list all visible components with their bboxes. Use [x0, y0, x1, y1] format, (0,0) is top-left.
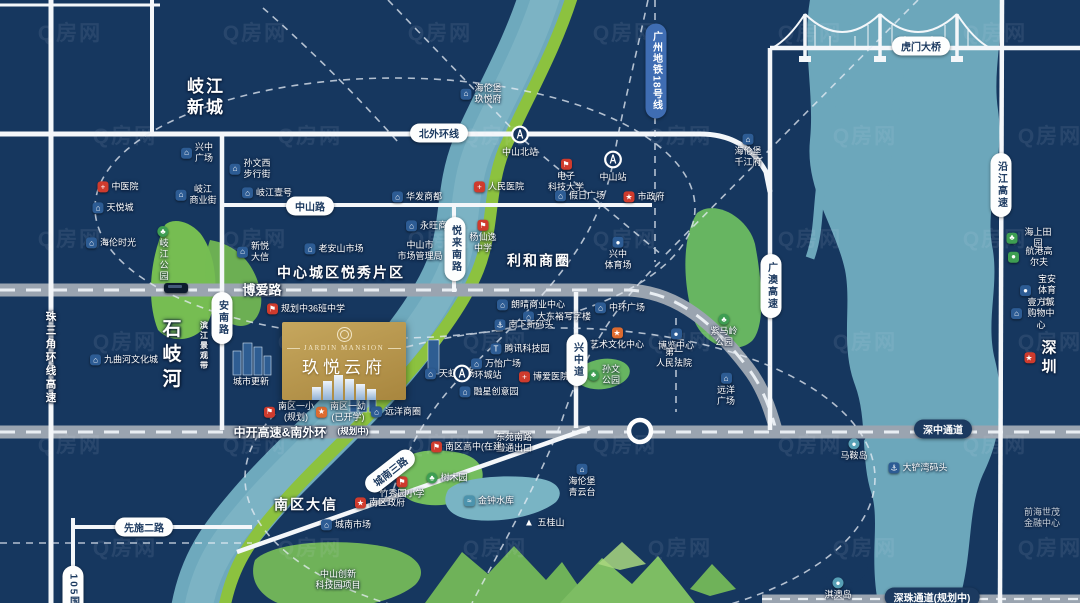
- property-logo-icon: [337, 327, 352, 342]
- poi-label: 南区一小 (规划): [278, 401, 314, 424]
- culture-icon: ★: [611, 327, 622, 338]
- poi-nanxia-new-wharf: ⚓南下新码头: [494, 319, 553, 330]
- poi-label: 远洋商圈: [385, 406, 421, 417]
- poi-yangxianyi-middle-school: ⚑杨仙逸 中学: [469, 220, 496, 255]
- poi-label: 海伦时光: [100, 237, 136, 248]
- stadium-icon: ●: [670, 328, 681, 339]
- school-icon: ⚑: [560, 159, 571, 170]
- road-label-shiqi-river: 石岐河: [157, 319, 184, 394]
- poi-hanggang-golf: ●航港高尔夫: [1008, 246, 1056, 269]
- mall-icon: ⌂: [459, 387, 470, 398]
- mall-icon: ⌂: [86, 238, 97, 249]
- metro-station-label: 中山站: [599, 170, 626, 183]
- poi-zhonghuan-plaza: ⌂中环广场: [595, 302, 645, 313]
- dev-icon: ⌂: [742, 134, 753, 145]
- road-label-yuelai-south-road: 悦来南路: [445, 217, 466, 281]
- poi-label: 城南市场: [335, 519, 371, 530]
- dev-icon: ⌂: [576, 464, 587, 475]
- poi-hailun-time: ⌂海伦时光: [86, 237, 136, 248]
- poi-nanqu-kindergarten: ★南区一幼 (已开学): [316, 401, 366, 424]
- road-label-guangao-expressway: 广澳高速: [761, 254, 782, 318]
- poi-qiao-island: ●淇澳岛: [824, 577, 851, 600]
- poi-qianhai-shimao-financial-center: 前海世茂 金融中心: [1024, 507, 1060, 530]
- poi-label: 九曲河文化城: [104, 354, 158, 365]
- stadium-icon: ●: [1020, 286, 1031, 297]
- road-label-prd-ring-expressway: 珠三角环线高速: [44, 311, 59, 406]
- poi-label: 海伦堡 玖悦府: [474, 83, 501, 106]
- poi-nanqu-high-school: ⚑南区高中(在建): [431, 441, 505, 452]
- poi-langqing-business-center: ⌂朗晴商业中心: [497, 299, 565, 310]
- poi-city-government: ★市政府: [623, 191, 664, 202]
- poi-art-culture-center: ★艺术文化中心: [590, 327, 644, 350]
- poi-label: 南下新码头: [508, 319, 553, 330]
- poi-qijiang-park: ♣岐江公园: [157, 226, 168, 282]
- poi-label: 腾讯科技园: [504, 343, 549, 354]
- poi-label: 人民医院: [488, 181, 524, 192]
- poi-yifangcheng-mall: ⌂壹方城 购物中心: [1011, 297, 1057, 331]
- road-label-guangzhou-metro-line-18: 广州地铁18号线: [646, 23, 667, 118]
- label-layer: +中医院⌂天悦城⌂兴中 广场⌂孙文西 步行街⌂岐江 商业街⌂岐江壹号⌂海伦时光♣…: [0, 0, 1080, 603]
- poi-label: 远洋 广场: [717, 385, 735, 408]
- poi-market-admin-bureau: 中山市 市场管理局: [397, 240, 442, 263]
- mall-icon: ⌂: [555, 191, 566, 202]
- poi-yuanyang-business-circle: ⌂远洋商圈: [371, 406, 421, 417]
- poi-arboretum: ♣树木园: [426, 472, 467, 483]
- mall-icon: ⌂: [90, 355, 101, 366]
- poi-chengnan-market: ⌂城南市场: [321, 519, 371, 530]
- property-title-en: JARDIN MANSION: [287, 344, 401, 352]
- area-label-text: 中心城区悦秀片区: [277, 264, 405, 280]
- park-icon: ♣: [158, 226, 169, 237]
- tech-icon: T: [490, 344, 501, 355]
- poi-label: 新悦 大信: [251, 241, 269, 264]
- poi-xingzhong-stadium: ●兴中 体育场: [604, 237, 631, 272]
- poi-tencent-tech-park: T腾讯科技园: [490, 343, 549, 354]
- mall-icon: ⌂: [595, 303, 606, 314]
- metro-station-icon-zhongshan-station: 中山站: [604, 150, 623, 174]
- park-icon: ♣: [588, 370, 599, 381]
- poi-huafa-mall: ⌂华发商都: [392, 191, 442, 202]
- poi-label: 中山市 市场管理局: [397, 240, 442, 263]
- poi-label: 岐江壹号: [256, 187, 292, 198]
- mall-icon: ⌂: [237, 247, 248, 258]
- metro-station-icon-zhongshan-north-station: 中山北站: [511, 125, 530, 149]
- water-icon: ≈: [464, 496, 475, 507]
- poi-label: 融星创意园: [473, 386, 518, 397]
- poi-label: 航港高尔夫: [1022, 246, 1056, 269]
- mall-icon: ⌂: [406, 221, 417, 232]
- school-icon: ⚑: [264, 407, 275, 418]
- poi-first-people-court: 第一 人民法院: [656, 347, 692, 370]
- school-icon: ⚑: [431, 442, 442, 453]
- poi-maan-island: ●马鞍岛: [840, 438, 867, 461]
- decor-line: [287, 348, 300, 349]
- poi-helenbergh-jiuyuefu: ⌂海伦堡 玖悦府: [460, 83, 501, 106]
- metro-station-label: 中山北站: [502, 145, 538, 158]
- mall-icon: ⌂: [175, 190, 186, 201]
- park-icon: ♣: [718, 314, 729, 325]
- poi-label: 南区高中(在建): [445, 441, 505, 452]
- poi-label: 中山创新 科技园项目: [315, 569, 360, 592]
- golf-icon: ●: [1008, 252, 1019, 263]
- dev-icon: ⌂: [460, 89, 471, 100]
- mall-icon: ⌂: [371, 407, 382, 418]
- road-label-shenzhong-corridor: 深中通道: [914, 420, 972, 439]
- poi-qijiang-no1: ⌂岐江壹号: [242, 187, 292, 198]
- area-label-text: 岐江 新城: [187, 77, 225, 117]
- island-icon: ●: [848, 438, 859, 449]
- park2-icon: ♣: [1007, 233, 1018, 244]
- hosp-icon: +: [519, 372, 530, 383]
- poi-qijiang-business-street: ⌂岐江 商业街: [175, 184, 216, 207]
- poi-xingzhong-plaza: ⌂兴中 广场: [181, 142, 213, 165]
- mountain-icon: ▲: [523, 518, 534, 529]
- poi-label: 艺术文化中心: [590, 339, 644, 350]
- area-label-text: 利和商圈: [507, 252, 571, 268]
- road-label-boai-road: 博爱路: [242, 280, 281, 299]
- hosp-icon: +: [97, 182, 108, 193]
- mall-icon: ⌂: [92, 203, 103, 214]
- area-label-text: 南区大信: [274, 496, 338, 512]
- poi-label: 华发商都: [406, 191, 442, 202]
- mall-icon: ⌂: [181, 148, 192, 159]
- decor-line: [388, 348, 401, 349]
- port-icon: ⚓: [494, 320, 505, 331]
- poi-boai-hospital: +博爱医院: [519, 371, 569, 382]
- poi-label: 竹秀园小学: [379, 488, 424, 499]
- metro-station-label: 环城站: [475, 368, 502, 381]
- hosp-icon: +: [474, 182, 485, 193]
- poi-tianyue-mall: ⌂天悦城: [92, 202, 133, 213]
- poi-label: 杨仙逸 中学: [469, 232, 496, 255]
- road-label-zhongshan-road: 中山路: [286, 197, 334, 216]
- poi-label: 朗晴商业中心: [511, 299, 565, 310]
- poi-label: 孙文西 步行街: [243, 158, 270, 181]
- gov-icon: ★: [355, 498, 366, 509]
- poi-label: 海伦堡 青云台: [568, 476, 595, 499]
- poi-label: 大铲湾码头: [902, 462, 947, 473]
- road-label-xingzhong-road: 兴中道: [567, 334, 588, 386]
- poi-label: 岐江 商业街: [189, 184, 216, 207]
- poi-label: 孙文 公园: [602, 364, 620, 387]
- poi-wuguishan-mountain: ▲五桂山: [523, 517, 564, 528]
- poi-jiuquhe-culture-city: ⌂九曲河文化城: [90, 354, 158, 365]
- poi-xinyue-daxin: ⌂新悦 大信: [237, 241, 269, 264]
- poi-sunwen-park: ♣孙文 公园: [588, 364, 620, 387]
- poi-label: 规划中36班中学: [281, 303, 345, 314]
- poi-label: 兴中 广场: [195, 142, 213, 165]
- metro-station-icon-huancheng-station: 环城站: [453, 364, 472, 388]
- poi-label: 树木园: [440, 472, 467, 483]
- gov-icon: ★: [623, 192, 634, 203]
- poi-dachanwan-wharf: ⚓大铲湾码头: [888, 462, 947, 473]
- poi-jinzhong-reservoir: ≈金钟水库: [464, 495, 514, 506]
- poi-yuanyang-plaza: ⌂远洋 广场: [717, 373, 735, 408]
- property-title-cn: 玖悦云府: [302, 353, 386, 378]
- area-label-nanqu-daxin: 南区大信: [274, 496, 338, 514]
- location-map: JARDIN MANSION 玖悦云府 +中医院⌂天悦城⌂兴中 广场⌂孙文西 步…: [0, 0, 1080, 603]
- poi-uestc-zhongshan: ⚑电子 科技大学: [548, 159, 584, 194]
- mall-icon: ⌂: [425, 369, 436, 380]
- poi-holiday-plaza: ⌂假日广场: [555, 190, 605, 201]
- poi-label: 海伦堡 千江府: [734, 146, 761, 169]
- poi-label: 中医院: [111, 181, 138, 192]
- area-label-qijiang-new-town: 岐江 新城: [187, 76, 225, 119]
- poi-label: 紫马岭 公园: [710, 326, 737, 349]
- property-card: JARDIN MANSION 玖悦云府: [282, 322, 406, 400]
- island-icon: ●: [832, 577, 843, 588]
- poi-label: 中环广场: [609, 302, 645, 313]
- mall-icon: ⌂: [1011, 309, 1022, 320]
- area-label-lihe-business-circle: 利和商圈: [507, 252, 571, 270]
- poi-sunwen-west-walking-street: ⌂孙文西 步行街: [229, 158, 270, 181]
- poi-label: 兴中 体育场: [604, 249, 631, 272]
- road-label-shenzhu-corridor-planned: 深珠通道(规划中): [885, 588, 980, 603]
- mall-icon: ⌂: [392, 192, 403, 203]
- school-icon: ⚑: [396, 476, 407, 487]
- road-label-humen-bridge: 虎门大桥: [892, 37, 950, 56]
- school-icon: ⚑: [267, 304, 278, 315]
- poi-label: 前海世茂 金融中心: [1024, 507, 1060, 530]
- poi-zimaling-park: ♣紫马岭 公园: [710, 314, 737, 349]
- property-building-image: [282, 379, 406, 400]
- road-label-g105-national-road: 105国道: [63, 566, 84, 603]
- poi-nanqu-primary-planned: ⚑南区一小 (规划): [264, 401, 314, 424]
- mall-icon: ⌂: [229, 164, 240, 175]
- poi-label: 第一 人民法院: [656, 347, 692, 370]
- road-label-riverside-landscape-belt: 滨江景观带: [199, 321, 210, 371]
- poi-people-hospital: +人民医院: [474, 181, 524, 192]
- poi-planned-36-class-school: ⚑规划中36班中学: [267, 303, 345, 314]
- poi-label: 壹方城 购物中心: [1025, 297, 1057, 331]
- mall-icon: ⌂: [720, 373, 731, 384]
- poi-tcm-hospital: +中医院: [97, 181, 138, 192]
- poi-rongxing-creative-park: ⌂融星创意园: [459, 386, 518, 397]
- poi-label: 老安山市场: [318, 243, 363, 254]
- road-label-zhongkai-expwy-south-ring: 中开高速&南外环: [234, 424, 327, 441]
- poi-laoanshan-market: ⌂老安山市场: [304, 243, 363, 254]
- road-label-annan-road: 安南路: [212, 292, 233, 344]
- poi-label: 马鞍岛: [840, 450, 867, 461]
- park-icon: ♣: [426, 473, 437, 484]
- poi-label: 南区一幼 (已开学): [330, 401, 366, 424]
- road-label-north-outer-ring-road: 北外环线: [410, 124, 468, 143]
- area-label-text: 深圳: [1039, 339, 1062, 377]
- poi-label: 五桂山: [537, 517, 564, 528]
- road-label-xianshi-2nd-road: 先施二路: [115, 518, 173, 537]
- poi-label: 假日广场: [569, 190, 605, 201]
- poi-helenbergh-qianjiangfu: ⌂海伦堡 千江府: [734, 134, 761, 169]
- poi-label: 淇澳岛: [824, 589, 851, 600]
- road-label-yanjiang-expressway: 沿江高速: [991, 153, 1012, 217]
- culture-icon: ★: [316, 407, 327, 418]
- poi-label: 城市更新: [233, 376, 269, 387]
- area-label-central-yuexiu-district: 中心城区悦秀片区: [277, 264, 405, 282]
- poi-label: 岐江公园: [157, 238, 168, 282]
- mall-icon: ⌂: [497, 300, 508, 311]
- port-icon: ⚓: [888, 463, 899, 474]
- gov-icon: ★: [1025, 353, 1036, 364]
- poi-label: 市政府: [637, 191, 664, 202]
- road-label-zhongkai-planned-note: (规划中): [337, 425, 368, 437]
- area-label-shenzhen: ★深圳: [1025, 339, 1062, 377]
- stadium-icon: ●: [612, 237, 623, 248]
- mall-icon: ⌂: [242, 188, 253, 199]
- poi-innovation-tech-park: 中山创新 科技园项目: [315, 569, 360, 592]
- school-icon: ⚑: [477, 220, 488, 231]
- poi-label: 天悦城: [106, 202, 133, 213]
- car-icon: [164, 283, 188, 293]
- poi-urban-renewal: 城市更新: [233, 376, 269, 387]
- poi-label: 金钟水库: [478, 495, 514, 506]
- mall-icon: ⌂: [304, 244, 315, 255]
- poi-helenbergh-qingyuntai: ⌂海伦堡 青云台: [568, 464, 595, 499]
- poi-label: 博爱医院: [533, 371, 569, 382]
- mall-icon: ⌂: [321, 520, 332, 531]
